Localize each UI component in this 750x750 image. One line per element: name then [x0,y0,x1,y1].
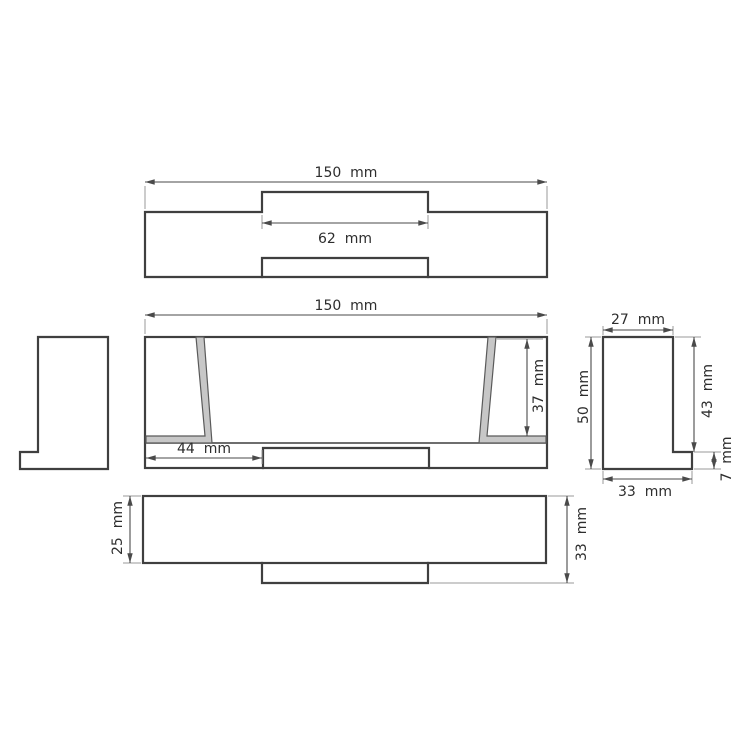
dimension-label: 27 mm [611,312,665,328]
dim-front-inner-depth: 37 mm [497,339,547,436]
dim-top-overall-width: 150 mm [145,165,547,209]
dimension-label: 50 mm [576,370,592,424]
dimension-label: 33 mm [618,484,672,500]
dim-right-overall-height: 50 mm [576,337,601,469]
dim-front-left-inset: 44 mm [146,441,262,464]
top-view: 150 mm 62 mm [145,165,547,277]
dim-bottom-body-depth: 25 mm [110,496,141,563]
technical-drawing-canvas: 150 mm 62 mm 150 mm [0,0,750,750]
bottom-view-tab [262,563,428,583]
dim-right-foot-height: 7 mm [694,436,735,481]
dimension-label: 62 mm [318,231,372,247]
dim-bottom-overall-depth: 33 mm [430,496,590,583]
dimension-label: 25 mm [110,501,126,555]
dimension-label: 33 mm [574,507,590,561]
left-profile-outline [20,337,108,469]
dim-right-bottom-width: 33 mm [603,471,692,500]
drawing-page: 150 mm 62 mm 150 mm [0,0,750,750]
dim-right-top-width: 27 mm [603,312,673,335]
dimension-label: 150 mm [315,298,378,314]
dim-top-tab-width: 62 mm [262,215,428,247]
dimension-label: 7 mm [719,436,735,481]
right-profile-view: 27 mm 50 mm 43 mm 7 mm [576,312,735,500]
bottom-view: 25 mm 33 mm [110,496,590,583]
bottom-view-body [143,496,546,563]
top-view-bottom-slot [262,258,428,277]
front-view: 150 mm 37 mm 44 mm [145,298,547,468]
front-view-bottom-tab [263,448,429,468]
left-profile-view [20,337,108,469]
right-profile-outline [603,337,692,469]
front-view-left-section-channel [146,337,212,443]
dimension-label: 37 mm [531,359,547,413]
dimension-label: 150 mm [315,165,378,181]
dim-right-upper-height: 43 mm [675,337,716,452]
dimension-label: 43 mm [700,364,716,418]
dimension-label: 44 mm [177,441,231,457]
dim-front-overall-width: 150 mm [145,298,547,334]
